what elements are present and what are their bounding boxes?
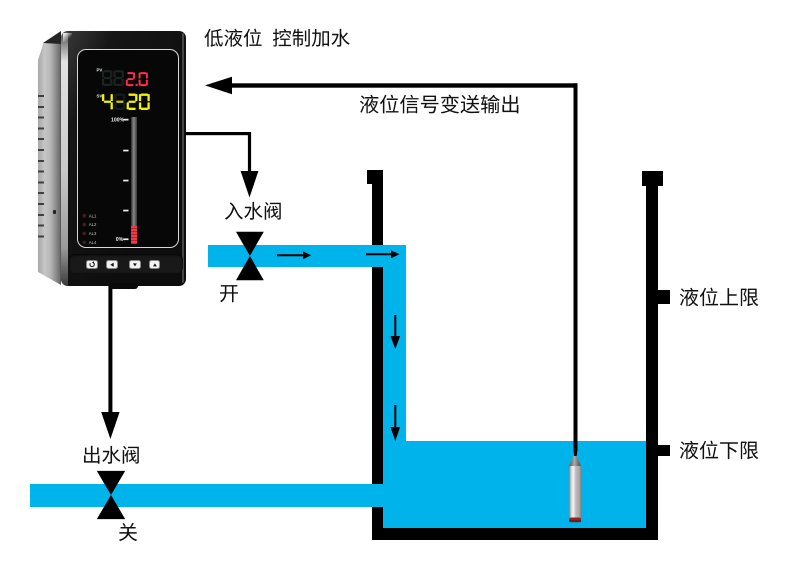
svg-text:AL3: AL3: [89, 231, 97, 236]
svg-text:100%: 100%: [111, 118, 125, 124]
svg-text:0%: 0%: [116, 237, 124, 243]
svg-text:PV: PV: [97, 67, 103, 72]
svg-text:AL1: AL1: [89, 213, 97, 218]
svg-text:AL4: AL4: [89, 240, 97, 245]
svg-text:AL2: AL2: [89, 222, 97, 227]
svg-text:SV: SV: [97, 94, 103, 99]
